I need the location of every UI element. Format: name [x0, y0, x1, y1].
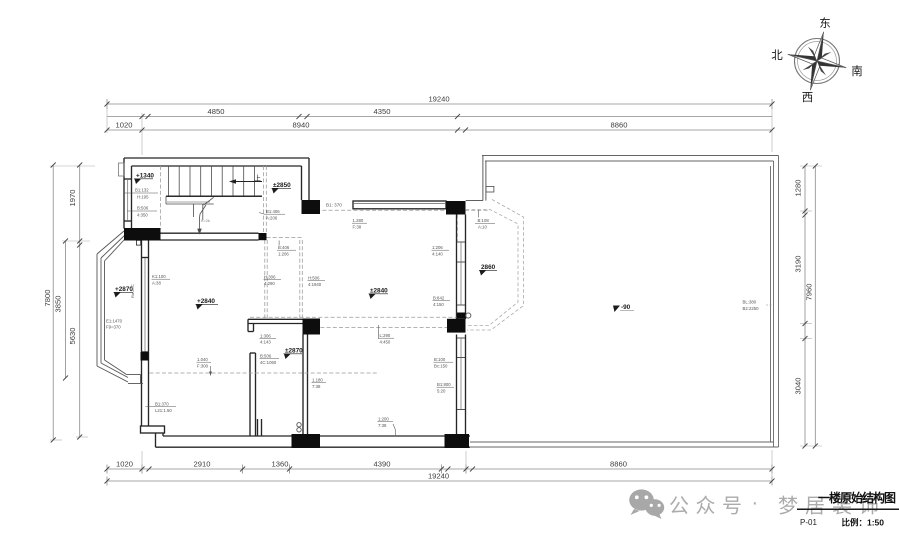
svg-text:B:406: B:406: [278, 245, 290, 250]
svg-text:E1:1470: E1:1470: [106, 319, 123, 324]
svg-text:B:842: B:842: [433, 296, 445, 301]
svg-text:1.040: 1.040: [197, 357, 208, 362]
svg-text:1020: 1020: [116, 460, 133, 469]
svg-text:1970: 1970: [68, 190, 77, 207]
svg-text:4:140: 4:140: [432, 252, 443, 257]
svg-text:8860: 8860: [611, 121, 628, 130]
svg-text:1280: 1280: [794, 180, 803, 197]
svg-text:4350: 4350: [374, 107, 391, 116]
svg-text:1.180: 1.180: [312, 378, 323, 383]
svg-text:H:306: H:306: [264, 275, 276, 280]
svg-text:H:195: H:195: [137, 195, 149, 200]
svg-text:P-01: P-01: [800, 518, 817, 527]
svg-text:4:150: 4:150: [433, 302, 444, 307]
svg-text:A:10: A:10: [478, 225, 487, 230]
svg-text:B1:370: B1:370: [155, 402, 169, 407]
svg-text:19240: 19240: [428, 95, 449, 104]
svg-text:A:38: A:38: [152, 281, 161, 286]
svg-text:上: 上: [254, 174, 261, 183]
svg-text:B1:132: B1:132: [135, 188, 149, 193]
svg-text:B1:406: B1:406: [266, 209, 280, 214]
svg-text:F:38: F:38: [353, 225, 362, 230]
svg-text:F:300: F:300: [197, 364, 209, 369]
svg-text:1:206: 1:206: [432, 245, 443, 250]
svg-text:B:506: B:506: [137, 206, 149, 211]
svg-text:比例：1:50: 比例：1:50: [842, 518, 885, 528]
svg-text:7:38: 7:38: [312, 384, 321, 389]
svg-text:4390: 4390: [374, 460, 391, 469]
svg-text:3040: 3040: [794, 378, 803, 395]
svg-text:K1:100: K1:100: [152, 274, 166, 279]
svg-text:BL:380: BL:380: [743, 300, 757, 305]
svg-text:L:290: L:290: [380, 333, 391, 338]
svg-text:一楼原始结构图: 一楼原始结构图: [818, 490, 896, 505]
svg-text:4:350: 4:350: [137, 213, 148, 218]
svg-text:8860: 8860: [610, 460, 627, 469]
svg-text:5630: 5630: [68, 328, 77, 345]
svg-text:A:206: A:206: [266, 216, 278, 221]
svg-text:B1: 370: B1: 370: [326, 203, 342, 208]
svg-text:1.280: 1.280: [353, 218, 364, 223]
svg-text:公众号: 公众号: [669, 495, 749, 518]
svg-text:B:506: B:506: [260, 354, 272, 359]
svg-text:7800: 7800: [43, 290, 52, 307]
svg-text:1:206: 1:206: [278, 252, 289, 257]
svg-text:5:20: 5:20: [437, 389, 446, 394]
svg-text:K=2k: K=2k: [201, 219, 210, 223]
svg-text:东: 东: [819, 17, 831, 30]
svg-text:·: ·: [752, 492, 759, 514]
svg-text:H:506: H:506: [308, 276, 320, 281]
svg-text:B2:2250: B2:2250: [743, 306, 760, 311]
svg-text:-90: -90: [621, 304, 631, 311]
svg-text:1:306: 1:306: [260, 334, 271, 339]
svg-text:B:108: B:108: [478, 218, 490, 223]
svg-text:2910: 2910: [194, 460, 211, 469]
svg-text:1:200: 1:200: [378, 417, 389, 422]
svg-text:7960: 7960: [805, 284, 814, 301]
svg-text:1360: 1360: [272, 460, 289, 469]
svg-text:西: 西: [802, 92, 814, 104]
svg-text:8940: 8940: [293, 121, 310, 130]
svg-text:4:143: 4:143: [260, 340, 271, 345]
svg-text:7:38: 7:38: [378, 423, 387, 428]
svg-text:B1:800: B1:800: [437, 382, 451, 387]
svg-text:4:1940: 4:1940: [308, 282, 322, 287]
svg-text:19240: 19240: [428, 472, 449, 481]
svg-text:F9=370: F9=370: [106, 325, 121, 330]
svg-text:4850: 4850: [208, 107, 225, 116]
svg-text:3190: 3190: [794, 256, 803, 273]
svg-text:4C:1060: 4C:1060: [260, 360, 277, 365]
svg-text:4:290: 4:290: [264, 281, 275, 286]
svg-text:B:100: B:100: [434, 357, 446, 362]
svg-text:北: 北: [771, 49, 783, 62]
svg-text:南: 南: [851, 64, 863, 78]
svg-text:1020: 1020: [116, 121, 133, 130]
svg-text:4:450: 4:450: [380, 340, 391, 345]
svg-text:3850: 3850: [54, 296, 63, 313]
svg-text:Bc:150: Bc:150: [434, 364, 448, 369]
svg-text:L21:1.50: L21:1.50: [155, 408, 172, 413]
